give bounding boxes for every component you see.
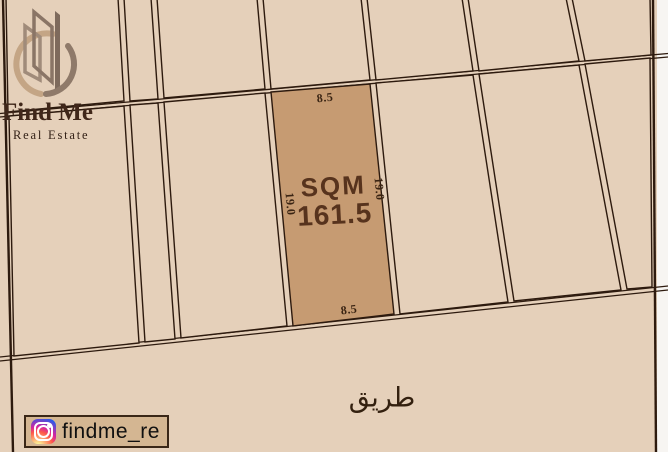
parcel-polygon <box>367 0 473 80</box>
dimension-right: 19.0 <box>371 177 388 201</box>
map-right-margin <box>657 0 668 452</box>
parcel-polygon <box>164 93 287 338</box>
building-logo-icon <box>0 2 92 102</box>
instagram-icon <box>31 419 56 444</box>
parcel-area-value: 161.5 <box>296 198 372 231</box>
instagram-badge[interactable]: findme_re <box>24 415 169 448</box>
plot-map-flyer: 8.5 8.5 19.0 19.0 SQM 161.5 طريق Find Me… <box>0 0 668 452</box>
brand-name: Find Me <box>2 99 93 127</box>
dimension-top: 8.5 <box>316 90 334 107</box>
brand-tagline: Real Estate <box>13 128 89 143</box>
parcel-polygon <box>468 0 579 71</box>
road-label: طريق <box>349 383 415 414</box>
parcel-polygon <box>263 0 370 89</box>
brand-logo: Find Me Real Estate <box>0 2 110 102</box>
dimension-bottom: 8.5 <box>340 302 358 319</box>
parcel-polygon <box>572 0 651 61</box>
parcel-polygon <box>157 0 265 98</box>
instagram-handle: findme_re <box>62 420 160 444</box>
parcel-area: SQM 161.5 <box>295 171 373 231</box>
parcel-polygon <box>9 106 139 356</box>
